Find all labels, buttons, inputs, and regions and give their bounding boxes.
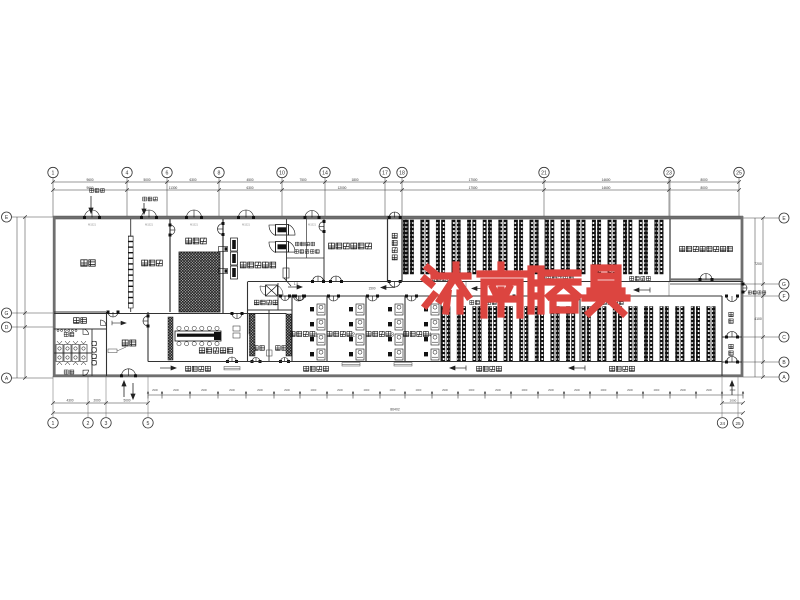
svg-text:2900: 2900 (601, 388, 607, 392)
svg-text:2900: 2900 (229, 388, 235, 392)
svg-text:1500: 1500 (368, 286, 375, 290)
svg-text:G: G (5, 311, 9, 317)
svg-text:25: 25 (735, 421, 741, 426)
svg-text:M1521: M1521 (88, 223, 96, 227)
svg-text:6300: 6300 (246, 186, 253, 190)
svg-text:2900: 2900 (152, 388, 158, 392)
svg-text:2900: 2900 (173, 388, 179, 392)
svg-text:17: 17 (382, 171, 388, 177)
svg-text:2900: 2900 (627, 388, 633, 392)
svg-text:8000: 8000 (700, 186, 707, 190)
svg-text:M1521: M1521 (190, 223, 198, 227)
svg-text:2900: 2900 (495, 388, 501, 392)
svg-text:2900: 2900 (522, 388, 528, 392)
svg-text:2900: 2900 (364, 388, 370, 392)
svg-text:2900: 2900 (442, 388, 448, 392)
svg-text:1.5: 1.5 (294, 282, 299, 286)
svg-text:2900: 2900 (469, 388, 475, 392)
svg-text:14: 14 (322, 171, 328, 177)
svg-text:9600: 9600 (86, 178, 93, 182)
svg-text:17500: 17500 (469, 178, 478, 182)
svg-text:2900: 2900 (337, 388, 343, 392)
svg-text:C: C (782, 335, 786, 341)
svg-text:6: 6 (166, 171, 169, 177)
svg-text:10: 10 (279, 171, 285, 177)
svg-text:21: 21 (541, 171, 547, 177)
svg-text:2900: 2900 (654, 388, 660, 392)
svg-text:2900: 2900 (284, 388, 290, 392)
svg-text:M1521: M1521 (145, 223, 153, 227)
svg-text:3: 3 (105, 421, 108, 427)
svg-text:1800: 1800 (351, 178, 358, 182)
svg-text:5: 5 (147, 421, 150, 427)
svg-text:2: 2 (87, 421, 90, 427)
svg-text:12000: 12000 (338, 186, 347, 190)
svg-text:2000: 2000 (93, 399, 100, 403)
svg-text:2900: 2900 (574, 388, 580, 392)
svg-text:18: 18 (399, 171, 405, 177)
svg-text:2900: 2900 (390, 388, 396, 392)
svg-text:23: 23 (666, 171, 672, 177)
svg-text:1: 1 (52, 171, 55, 177)
svg-text:11300: 11300 (169, 186, 178, 190)
svg-text:8: 8 (218, 171, 221, 177)
svg-text:M1521: M1521 (308, 223, 316, 227)
svg-text:D: D (5, 325, 9, 331)
svg-text:17500: 17500 (469, 186, 478, 190)
svg-text:2900: 2900 (730, 388, 736, 392)
svg-text:8000: 8000 (700, 178, 707, 182)
svg-text:4500: 4500 (246, 178, 253, 182)
svg-text:6300: 6300 (189, 178, 196, 182)
svg-text:2900: 2900 (548, 388, 554, 392)
svg-text:2900: 2900 (201, 388, 207, 392)
svg-text:4300: 4300 (66, 399, 73, 403)
svg-text:5000: 5000 (143, 178, 150, 182)
svg-text:7500: 7500 (299, 178, 306, 182)
svg-text:1: 1 (52, 421, 55, 427)
svg-text:1: 1 (315, 332, 318, 338)
svg-text:2900: 2900 (680, 388, 686, 392)
svg-text:9600: 9600 (86, 186, 93, 190)
svg-text:86402: 86402 (390, 408, 400, 412)
svg-text:25: 25 (736, 171, 742, 177)
svg-text:F: F (782, 294, 785, 300)
svg-text:7200: 7200 (754, 262, 762, 266)
svg-text:24: 24 (720, 421, 726, 426)
svg-text:M1521: M1521 (242, 223, 250, 227)
svg-text:14600: 14600 (602, 186, 611, 190)
svg-text:4: 4 (126, 171, 129, 177)
svg-text:2900: 2900 (311, 388, 317, 392)
svg-text:2900: 2900 (416, 388, 422, 392)
svg-text:2000: 2000 (730, 399, 737, 403)
svg-text:2900: 2900 (706, 388, 712, 392)
svg-text:4100: 4100 (754, 317, 762, 321)
svg-text:5000: 5000 (123, 399, 130, 403)
svg-text:2900: 2900 (257, 388, 263, 392)
svg-text:14600: 14600 (602, 178, 611, 182)
svg-text:G: G (782, 282, 786, 288)
